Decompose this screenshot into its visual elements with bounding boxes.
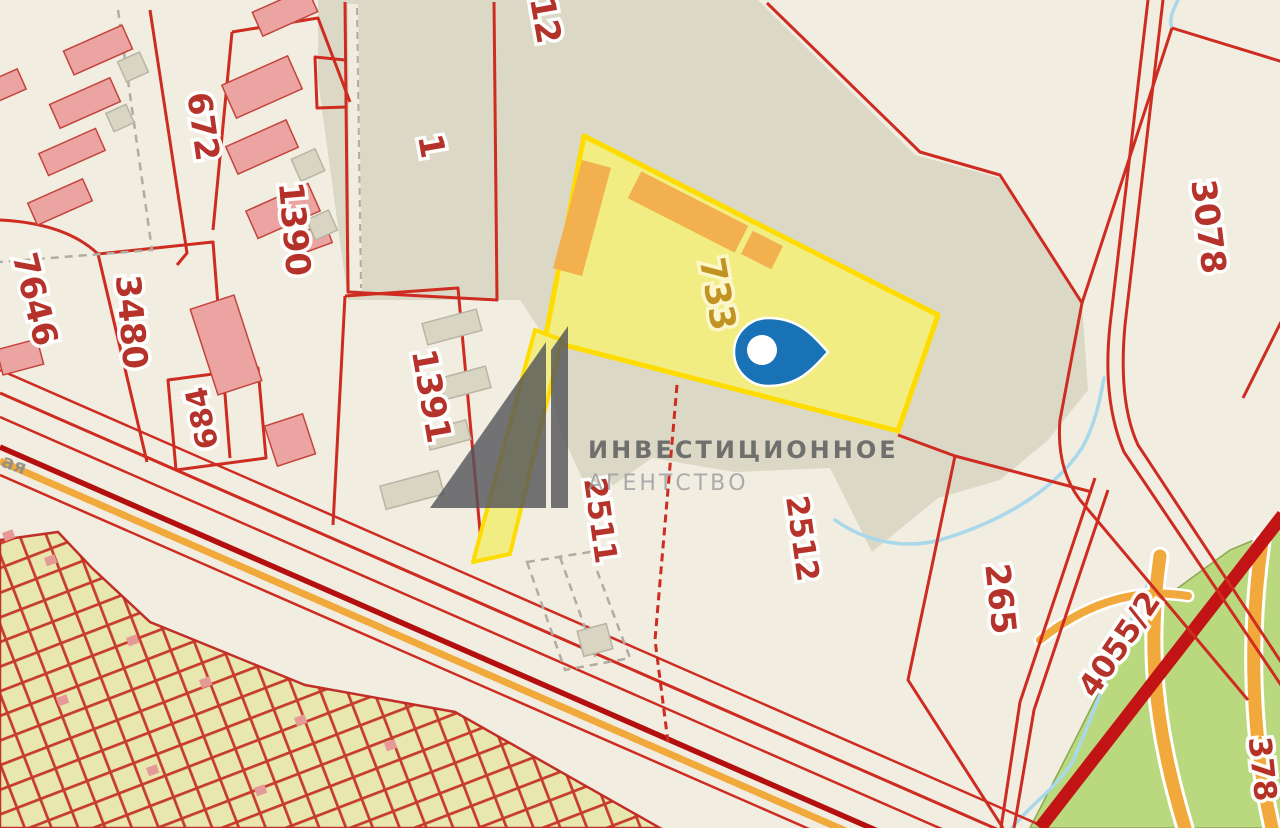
map-canvas[interactable]: 672 1390 1 12 7646 3480 684 1391 2511 25… bbox=[0, 0, 1280, 828]
watermark-line1: ИНВЕСТИЦИОННОЕ bbox=[588, 436, 899, 464]
parcel-label-265: 265 bbox=[976, 561, 1023, 636]
parcel-label-378: 378 bbox=[1241, 735, 1280, 803]
parcel-label-12: 12 bbox=[521, 0, 569, 47]
cadastral-map-view[interactable]: 672 1390 1 12 7646 3480 684 1391 2511 25… bbox=[0, 0, 1280, 828]
watermark-logo-stripe-icon bbox=[551, 326, 568, 508]
watermark-line2: АГЕНТСТВО bbox=[588, 471, 749, 496]
pin-hole bbox=[747, 335, 777, 365]
parcel-label-1390: 1390 bbox=[270, 180, 318, 278]
parcel-label-3480: 3480 bbox=[107, 273, 155, 371]
